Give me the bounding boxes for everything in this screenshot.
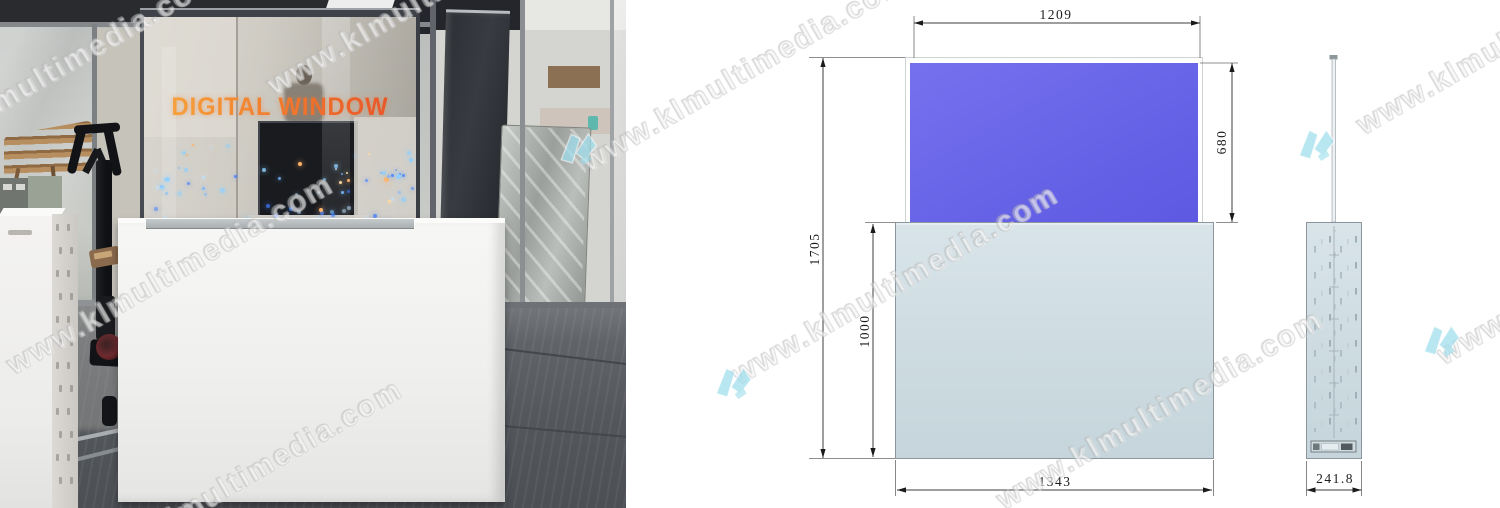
front-screen-area <box>910 63 1198 222</box>
particle-dot <box>395 169 397 171</box>
pegboard-hole <box>56 454 59 461</box>
front-cabinet <box>896 223 1214 459</box>
pegboard-hole <box>59 385 62 392</box>
pegboard-hole <box>67 408 70 415</box>
pegboard-hole <box>70 339 73 346</box>
particle-dot <box>347 206 351 210</box>
particle-dot <box>154 207 158 211</box>
wood-shelf <box>548 66 600 88</box>
particle-dot <box>391 198 394 201</box>
pegboard-hole <box>70 247 73 254</box>
pegboard-face <box>52 214 78 508</box>
particle-dot <box>388 200 391 203</box>
pegboard-hole <box>67 362 70 369</box>
particle-dot <box>160 185 165 190</box>
pegboard-hole <box>56 408 59 415</box>
particle-dot <box>341 173 343 175</box>
particle-dot <box>187 182 190 185</box>
particle-dot <box>341 191 344 194</box>
front-view <box>896 58 1214 459</box>
particle-animation <box>144 17 416 222</box>
pallet-jack-roller <box>102 396 117 426</box>
cabinet-label-1 <box>3 184 12 190</box>
pegboard-hole <box>59 339 62 346</box>
particle-dot <box>178 167 180 169</box>
particle-dot <box>323 178 326 181</box>
cabinet-label-2 <box>16 184 25 190</box>
particle-dot <box>331 213 335 217</box>
particle-dot <box>342 209 346 213</box>
dim-cabinet-width: 1343 <box>1039 474 1072 489</box>
pegboard-hole <box>56 270 59 277</box>
diagram-svg: 1209 680 1705 1000 1343 241.8 <box>628 0 1500 508</box>
particle-dot <box>347 179 350 182</box>
particle-dot <box>226 144 230 148</box>
particle-dot <box>387 175 390 178</box>
particle-dot <box>347 190 350 193</box>
particle-dot <box>295 193 298 196</box>
particle-dot <box>202 187 205 190</box>
dim-cabinet-height: 1000 <box>857 315 872 348</box>
side-strip-block-2 <box>1322 444 1339 451</box>
particle-dot <box>411 187 414 190</box>
particle-dot <box>289 207 293 211</box>
dim-total-height: 1705 <box>807 233 822 266</box>
particle-dot <box>186 154 188 156</box>
wall-frame-post-mid <box>520 0 525 322</box>
particle-dot <box>298 162 302 166</box>
particle-dot <box>398 191 401 194</box>
particle-dot <box>297 210 301 214</box>
dim-screen-width: 1209 <box>1040 7 1073 22</box>
particle-dot <box>165 192 168 195</box>
particle-dot <box>354 155 356 157</box>
particle-dot <box>396 174 401 179</box>
particle-dot <box>274 214 278 218</box>
particle-dot <box>155 170 157 172</box>
particle-dot <box>165 177 170 182</box>
side-strip-block-3 <box>1341 444 1353 451</box>
particle-dot <box>365 179 368 182</box>
particle-dot <box>402 174 405 177</box>
particle-dot <box>192 144 194 146</box>
screen-slot-strip <box>146 219 414 229</box>
product-photo: DIGITAL WINDOW <box>0 0 626 508</box>
pegboard-hole <box>70 477 73 484</box>
particle-dot <box>266 204 270 208</box>
dim-screen-height: 680 <box>1214 130 1229 155</box>
pegboard-hole <box>59 293 62 300</box>
wrap-shine <box>497 127 588 320</box>
pegboard-hole <box>59 431 62 438</box>
side-view <box>1307 55 1362 459</box>
particle-dot <box>380 172 382 174</box>
particle-dot <box>210 146 212 148</box>
particle-dot <box>409 158 413 162</box>
particle-dot <box>317 191 320 194</box>
particle-dot <box>234 175 237 178</box>
particle-dot <box>278 177 281 180</box>
dim-depth: 241.8 <box>1316 471 1354 486</box>
product-showcase: DIGITAL WINDOW <box>0 0 1500 508</box>
side-screen-edge <box>1332 59 1336 222</box>
pegboard-hole <box>70 293 73 300</box>
particle-dot <box>156 186 159 189</box>
white-box-front <box>0 216 52 508</box>
pegboard-hole <box>70 385 73 392</box>
particle-dot <box>407 151 411 155</box>
pegboard-hole <box>56 316 59 323</box>
particle-dot <box>262 168 266 172</box>
particle-dot <box>346 172 348 174</box>
pegboard-hole <box>67 224 70 231</box>
particle-dot <box>184 168 188 172</box>
particle-dot <box>368 153 370 155</box>
particle-dot <box>391 174 394 177</box>
particle-dot <box>335 168 337 170</box>
pegboard-hole <box>56 224 59 231</box>
particle-dot <box>339 181 342 184</box>
particle-dot <box>220 188 225 193</box>
particle-dot <box>202 176 205 179</box>
transparent-screen: DIGITAL WINDOW <box>140 10 420 222</box>
side-strip-block-1 <box>1313 444 1320 451</box>
particle-dot <box>382 171 386 175</box>
white-box-slot <box>8 230 32 235</box>
pegboard-hole <box>56 362 59 369</box>
white-box <box>0 206 78 508</box>
pegboard-hole <box>70 431 73 438</box>
pegboard-hole <box>67 316 70 323</box>
pedestal <box>118 218 505 502</box>
particle-dot <box>177 191 182 196</box>
pegboard-hole <box>59 247 62 254</box>
pegboard-hole <box>59 477 62 484</box>
pegboard-hole <box>67 454 70 461</box>
pegboard-hole <box>67 270 70 277</box>
particle-dot <box>182 151 186 155</box>
particle-dot <box>204 193 207 196</box>
particle-dot <box>401 197 406 202</box>
